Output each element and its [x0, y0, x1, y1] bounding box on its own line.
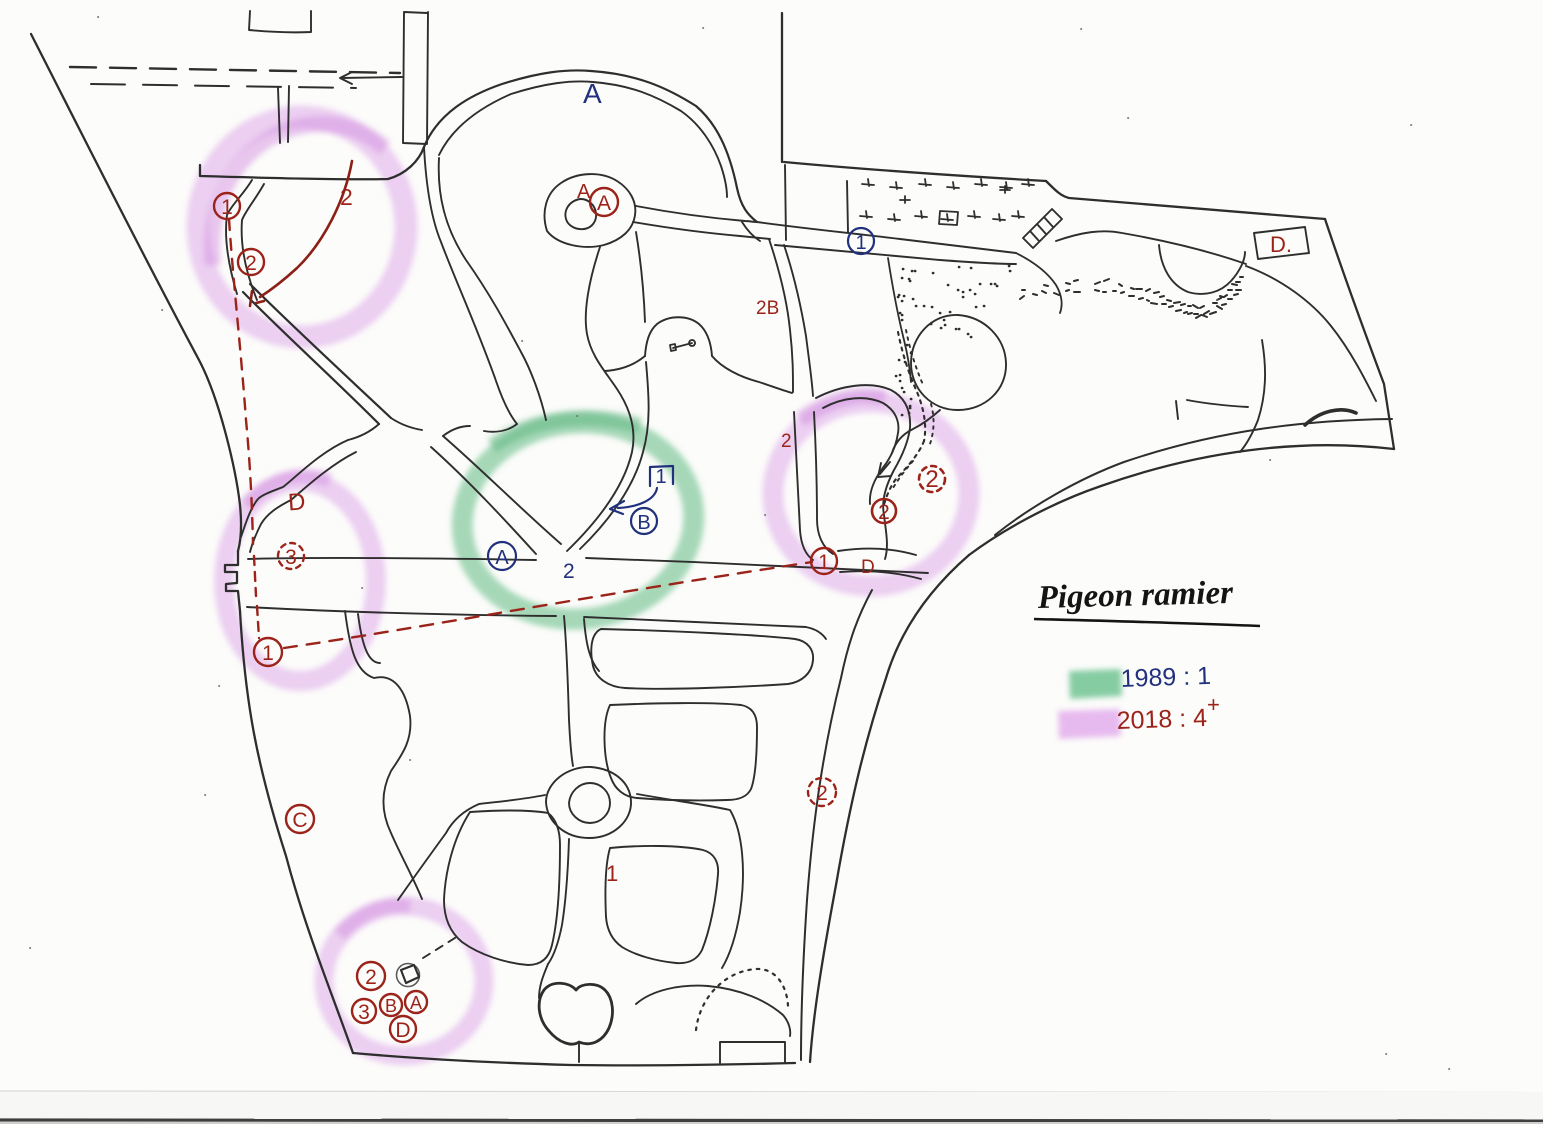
svg-text:2: 2	[563, 560, 575, 583]
svg-text:1: 1	[818, 551, 830, 574]
svg-text:2018 : 4: 2018 : 4	[1116, 704, 1207, 735]
svg-text:B: B	[385, 996, 397, 1016]
svg-text:3: 3	[285, 546, 297, 569]
svg-text:2: 2	[925, 466, 938, 493]
svg-text:2: 2	[365, 966, 377, 989]
svg-text:2: 2	[781, 431, 792, 452]
svg-text:D: D	[395, 1019, 410, 1042]
svg-text:1: 1	[655, 466, 666, 488]
svg-text:D: D	[861, 557, 875, 578]
svg-text:2: 2	[878, 501, 890, 524]
svg-text:2: 2	[245, 252, 257, 275]
svg-text:+: +	[1207, 692, 1220, 717]
svg-text:A: A	[495, 547, 509, 569]
svg-text:1989 : 1: 1989 : 1	[1120, 662, 1211, 693]
svg-text:C: C	[292, 809, 307, 832]
svg-text:1: 1	[221, 196, 233, 219]
svg-text:B: B	[637, 512, 650, 534]
svg-text:3: 3	[358, 1001, 370, 1024]
svg-text:2B: 2B	[756, 298, 779, 319]
svg-text:A: A	[597, 192, 611, 215]
svg-text:A: A	[577, 181, 591, 203]
svg-text:D: D	[287, 488, 306, 516]
svg-text:2: 2	[816, 782, 828, 805]
svg-text:D.: D.	[1270, 232, 1292, 257]
svg-text:1: 1	[606, 861, 618, 886]
svg-text:1: 1	[262, 642, 274, 665]
svg-text:A: A	[583, 78, 602, 109]
svg-text:1: 1	[855, 232, 866, 254]
svg-text:Pigeon ramier: Pigeon ramier	[1036, 575, 1234, 616]
svg-text:A: A	[410, 993, 422, 1013]
